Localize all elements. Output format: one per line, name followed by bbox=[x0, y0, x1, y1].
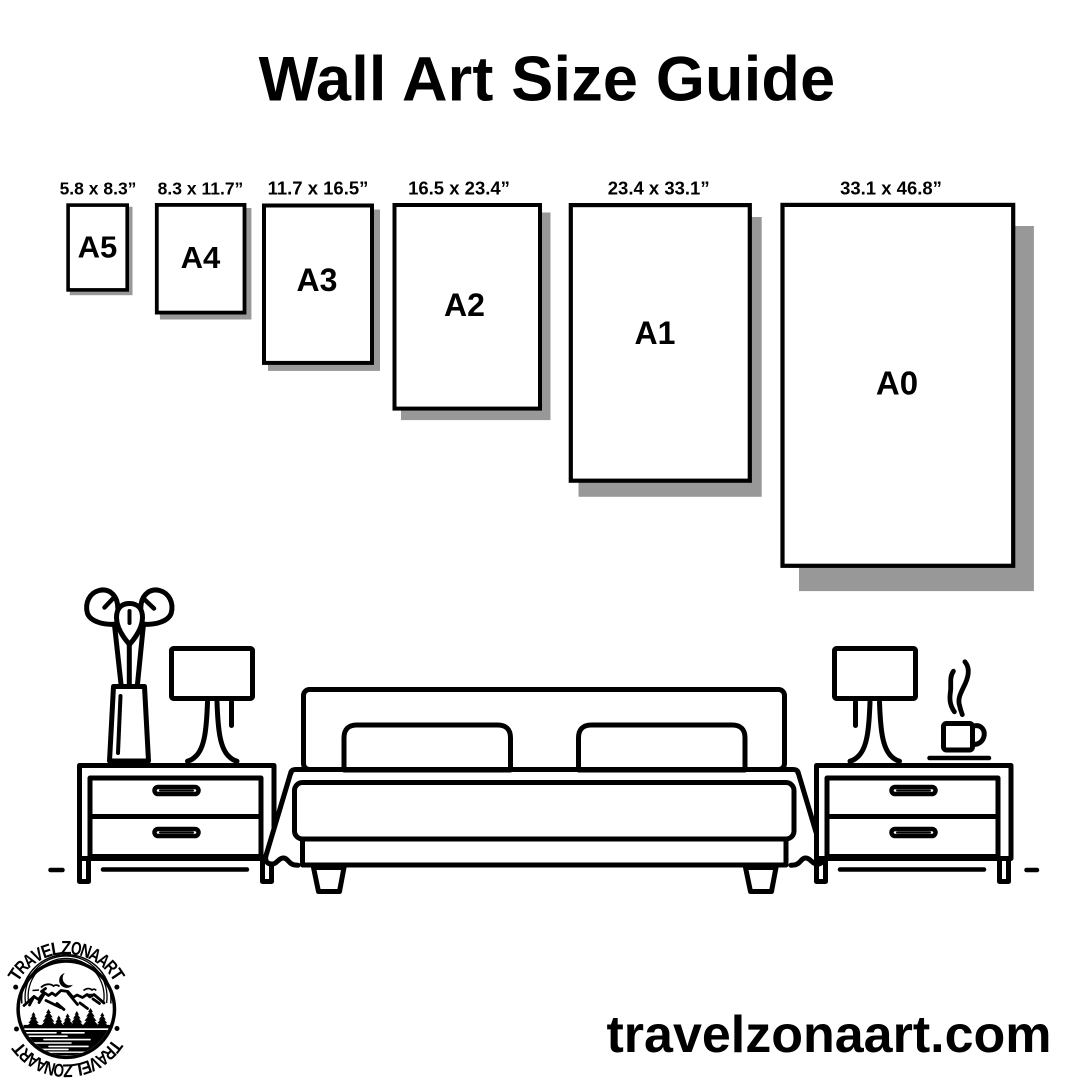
svg-text:33.1 x 46.8”: 33.1 x 46.8” bbox=[840, 178, 942, 199]
svg-text:5.8 x 8.3”: 5.8 x 8.3” bbox=[60, 179, 137, 199]
svg-text:A3: A3 bbox=[297, 262, 338, 298]
svg-text:travelzonaart.com: travelzonaart.com bbox=[606, 1006, 1051, 1064]
svg-text:23.4 x 33.1”: 23.4 x 33.1” bbox=[608, 178, 710, 199]
svg-text:11.7 x 16.5”: 11.7 x 16.5” bbox=[268, 178, 369, 199]
svg-text:A0: A0 bbox=[876, 365, 918, 402]
svg-text:Wall Art Size Guide: Wall Art Size Guide bbox=[259, 45, 836, 115]
svg-text:A4: A4 bbox=[181, 240, 221, 275]
svg-text:8.3 x 11.7”: 8.3 x 11.7” bbox=[158, 179, 244, 199]
svg-text:A5: A5 bbox=[78, 229, 118, 264]
svg-text:A2: A2 bbox=[444, 287, 485, 323]
svg-text:A1: A1 bbox=[635, 315, 676, 351]
svg-text:16.5 x 23.4”: 16.5 x 23.4” bbox=[408, 178, 510, 199]
